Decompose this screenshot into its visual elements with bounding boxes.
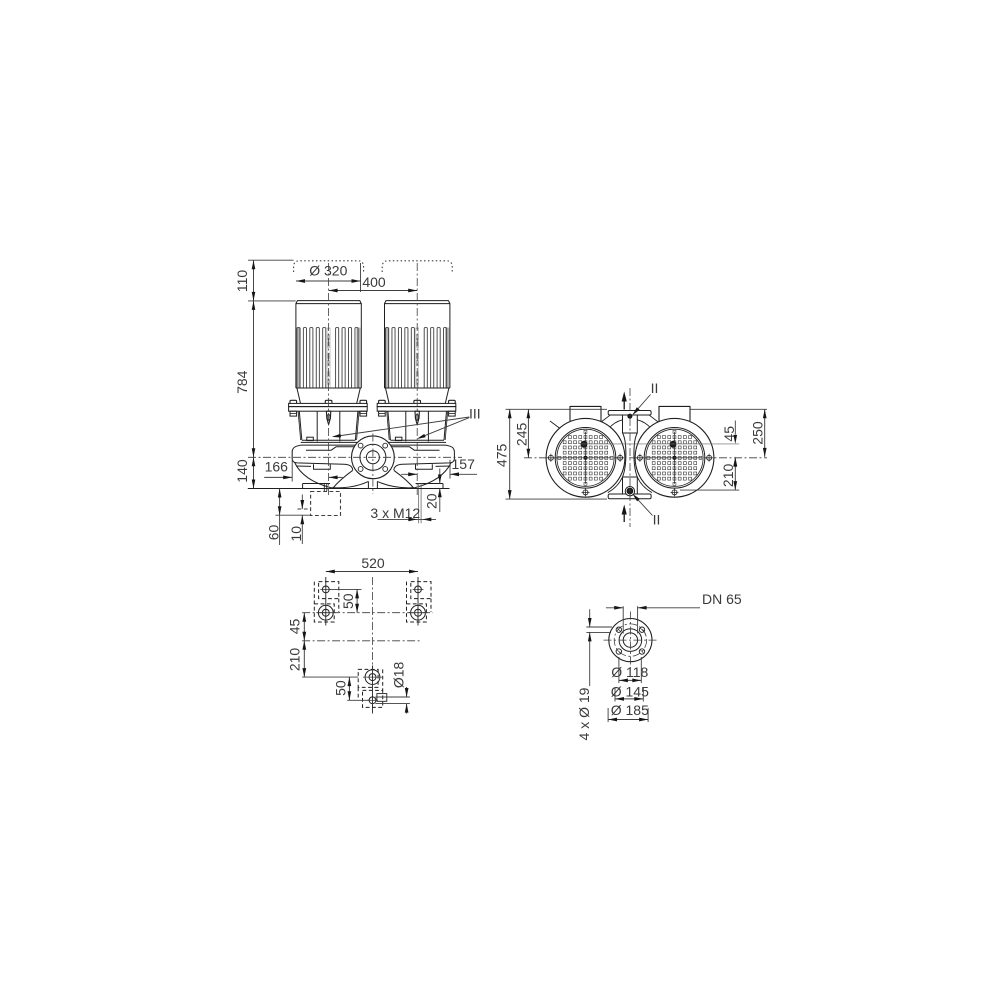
svg-text:245: 245 bbox=[514, 423, 530, 447]
svg-text:III: III bbox=[469, 406, 481, 422]
svg-text:4 x Ø 19: 4 x Ø 19 bbox=[576, 687, 592, 740]
svg-text:Ø18: Ø18 bbox=[391, 661, 407, 688]
svg-text:520: 520 bbox=[361, 555, 385, 571]
svg-text:210: 210 bbox=[720, 464, 736, 488]
svg-text:II: II bbox=[653, 512, 661, 528]
svg-text:110: 110 bbox=[234, 270, 250, 293]
svg-text:DN 65: DN 65 bbox=[702, 591, 742, 607]
svg-text:Ø 185: Ø 185 bbox=[611, 702, 649, 718]
svg-text:Ø 118: Ø 118 bbox=[611, 664, 648, 680]
svg-text:60: 60 bbox=[265, 525, 281, 541]
svg-text:Ø 145: Ø 145 bbox=[611, 684, 649, 700]
svg-text:166: 166 bbox=[265, 459, 289, 475]
svg-text:45: 45 bbox=[286, 619, 302, 635]
svg-text:784: 784 bbox=[234, 370, 250, 394]
svg-text:400: 400 bbox=[362, 274, 386, 290]
svg-text:210: 210 bbox=[286, 648, 302, 672]
svg-text:Ø 320: Ø 320 bbox=[309, 262, 347, 278]
svg-text:250: 250 bbox=[750, 421, 766, 445]
svg-text:50: 50 bbox=[340, 593, 356, 609]
svg-text:20: 20 bbox=[423, 493, 439, 509]
svg-text:45: 45 bbox=[721, 426, 737, 442]
svg-text:157: 157 bbox=[452, 456, 476, 472]
svg-text:475: 475 bbox=[494, 444, 510, 468]
svg-text:50: 50 bbox=[333, 680, 349, 696]
svg-text:10: 10 bbox=[288, 526, 304, 542]
svg-text:II: II bbox=[651, 380, 659, 396]
svg-text:140: 140 bbox=[234, 459, 250, 483]
